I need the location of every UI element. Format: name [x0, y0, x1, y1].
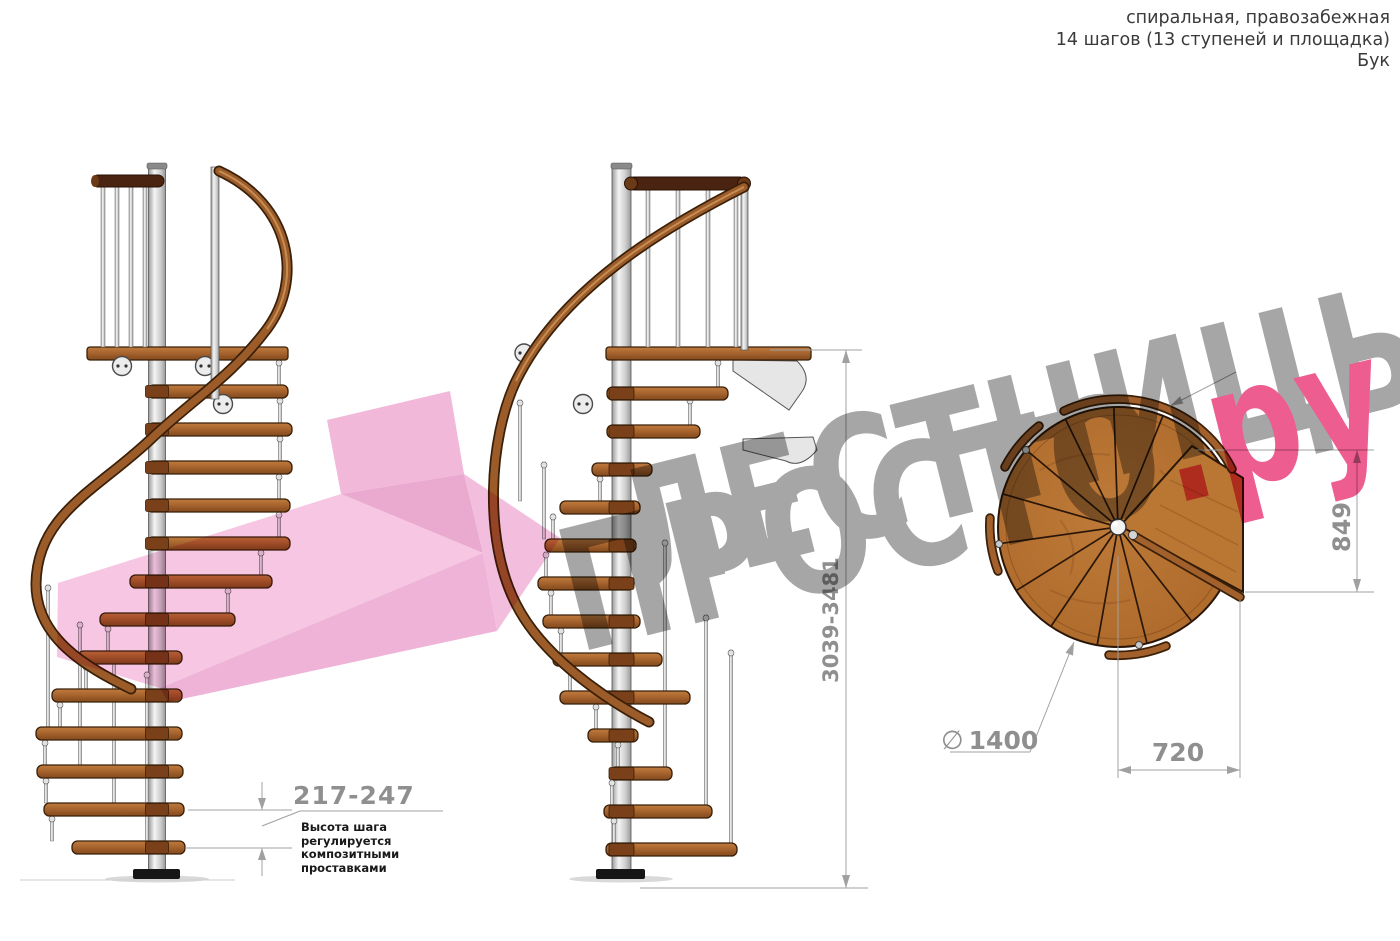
dimension-diameter-value: 1400	[969, 726, 1039, 755]
technical-drawing-canvas: спиральная, правозабежная 14 шагов (13 с…	[0, 0, 1400, 941]
diameter-icon: ∅	[941, 726, 964, 756]
dimension-landing-width: 720	[1128, 738, 1228, 767]
left-elevation-view	[20, 163, 292, 883]
dimension-step-height: 217-247	[293, 781, 415, 810]
title-line-type: спиральная, правозабежная	[1056, 8, 1390, 30]
step-height-note: Высота шага регулируется композитными пр…	[301, 821, 399, 875]
title-line-steps: 14 шагов (13 ступеней и площадка)	[1056, 30, 1390, 52]
staircase-drawing	[0, 0, 1400, 941]
title-line-material: Бук	[1056, 51, 1390, 73]
dimension-total-height: 3039-3481	[819, 540, 845, 700]
dimension-diameter: ∅1400	[941, 726, 1038, 756]
plan-view	[990, 399, 1243, 655]
title-block: спиральная, правозабежная 14 шагов (13 с…	[1056, 8, 1390, 73]
middle-elevation-view	[493, 163, 817, 883]
dimension-landing-depth: 849	[1328, 487, 1354, 567]
